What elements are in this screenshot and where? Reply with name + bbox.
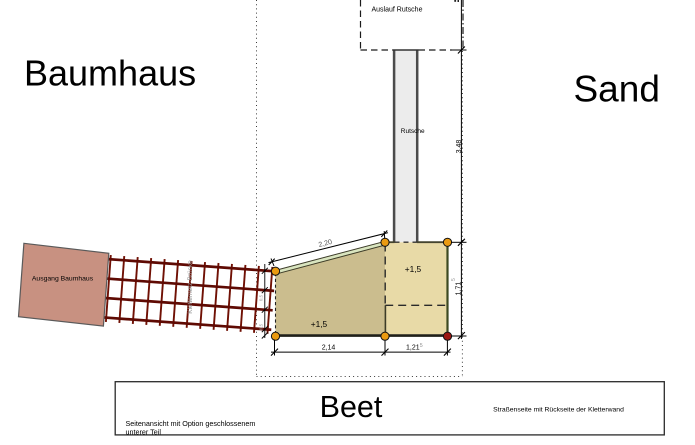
svg-text:Auslauf Rutsche: Auslauf Rutsche [372, 6, 423, 13]
svg-text:+1,5: +1,5 [311, 319, 328, 329]
svg-text:5: 5 [420, 343, 423, 349]
svg-text:Straßenseite mit Rückseite der: Straßenseite mit Rückseite der Kletterwa… [493, 406, 624, 413]
svg-text:5: 5 [451, 278, 457, 281]
svg-text:1,21: 1,21 [406, 345, 420, 352]
svg-text:Baumhaus: Baumhaus [24, 53, 196, 94]
svg-text:3,48: 3,48 [456, 140, 463, 154]
svg-text:0,5: 0,5 [259, 323, 264, 330]
svg-text:2,14: 2,14 [322, 345, 336, 352]
svg-text:Sand: Sand [574, 69, 660, 110]
svg-text:Kletternetz-Brücke: Kletternetz-Brücke [187, 260, 194, 314]
svg-text:1,71: 1,71 [455, 282, 462, 296]
svg-text:Rutsche: Rutsche [401, 128, 425, 135]
svg-text:Beet: Beet [320, 390, 383, 424]
svg-text:unterer Teil: unterer Teil [126, 427, 162, 436]
svg-text:Ausgang Baumhaus: Ausgang Baumhaus [32, 275, 94, 282]
svg-text:0,5: 0,5 [259, 294, 264, 301]
svg-text:+1,5: +1,5 [405, 264, 422, 274]
